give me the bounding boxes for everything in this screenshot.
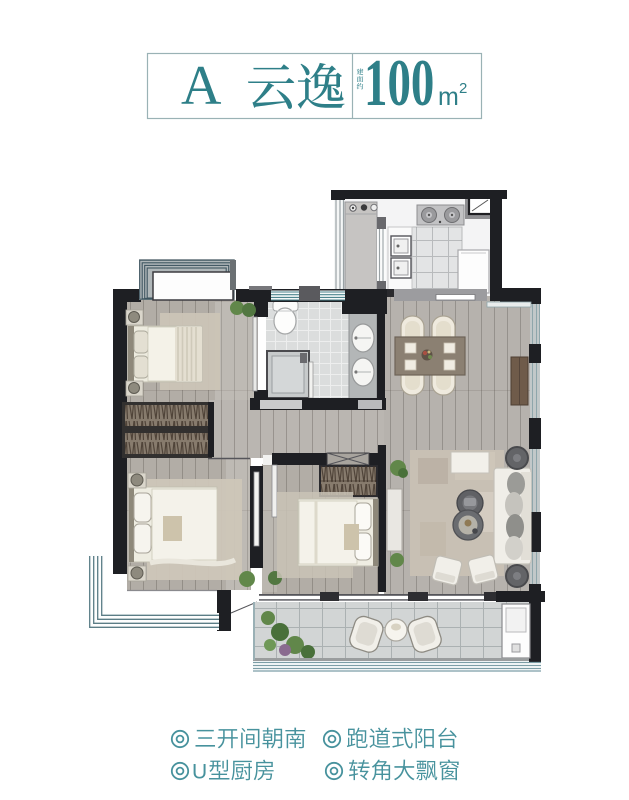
- svg-text:100: 100: [364, 45, 434, 120]
- svg-text:A: A: [181, 55, 222, 117]
- svg-text:2: 2: [459, 80, 467, 97]
- svg-text:m: m: [438, 83, 459, 111]
- svg-text:U: U: [192, 761, 207, 784]
